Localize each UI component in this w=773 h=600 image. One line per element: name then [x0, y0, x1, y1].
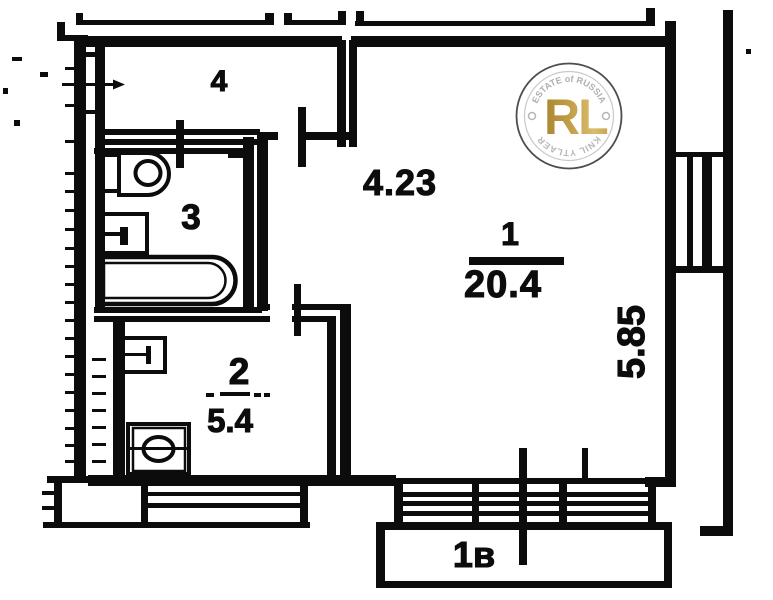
- svg-text:4: 4: [211, 65, 228, 98]
- svg-text:20.4: 20.4: [464, 264, 542, 306]
- svg-text:5.85: 5.85: [611, 305, 653, 379]
- svg-text:1в: 1в: [453, 534, 495, 575]
- svg-text:RL: RL: [544, 89, 607, 145]
- svg-text:1: 1: [501, 216, 519, 252]
- svg-text:2: 2: [229, 351, 250, 392]
- svg-text:3: 3: [181, 198, 200, 237]
- svg-text:5.4: 5.4: [207, 402, 254, 439]
- svg-text:4.23: 4.23: [363, 162, 437, 203]
